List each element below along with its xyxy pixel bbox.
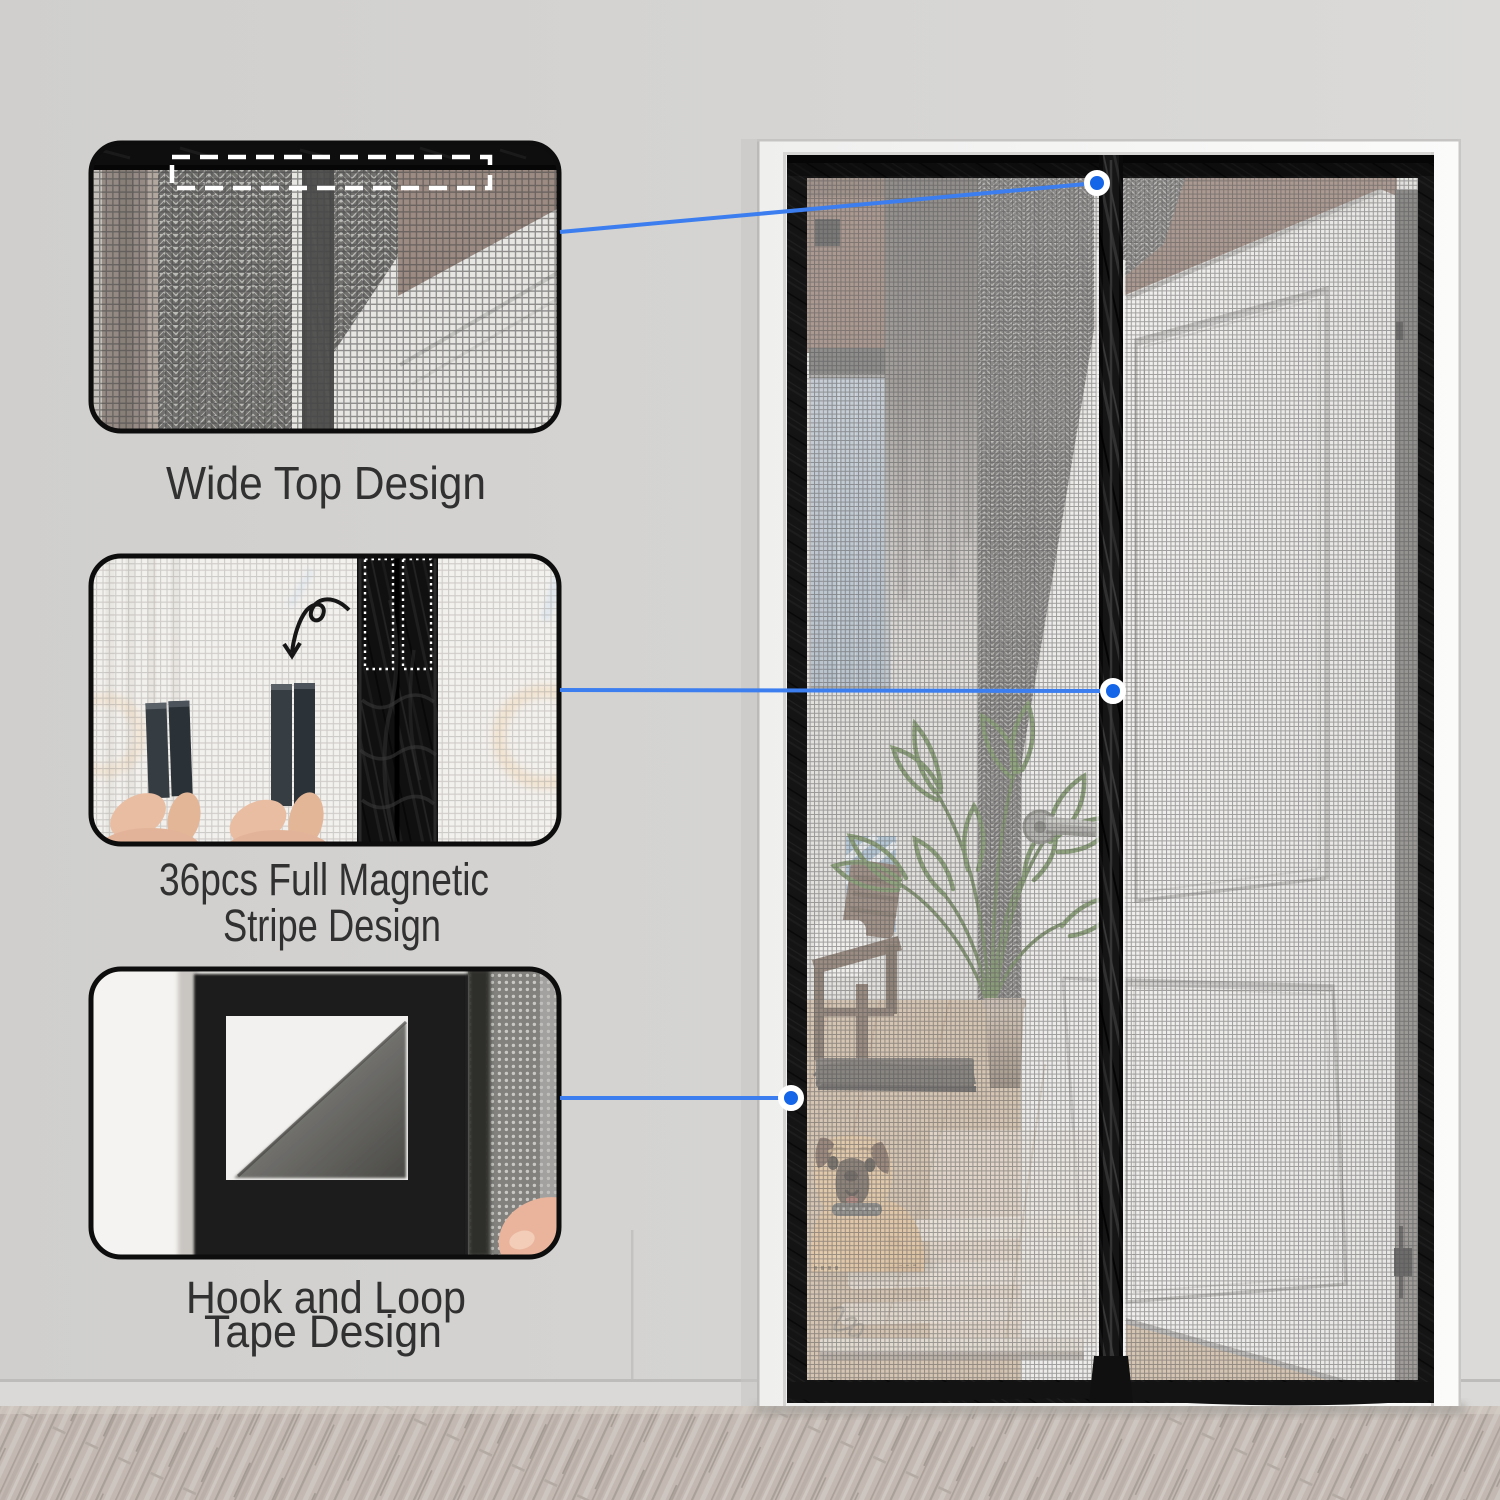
svg-text:Stripe Design: Stripe Design (223, 900, 441, 951)
svg-text:Tape Design: Tape Design (204, 1306, 442, 1357)
svg-text:Wide Top Design: Wide Top Design (166, 457, 486, 509)
svg-text:36pcs Full Magnetic: 36pcs Full Magnetic (159, 854, 489, 905)
